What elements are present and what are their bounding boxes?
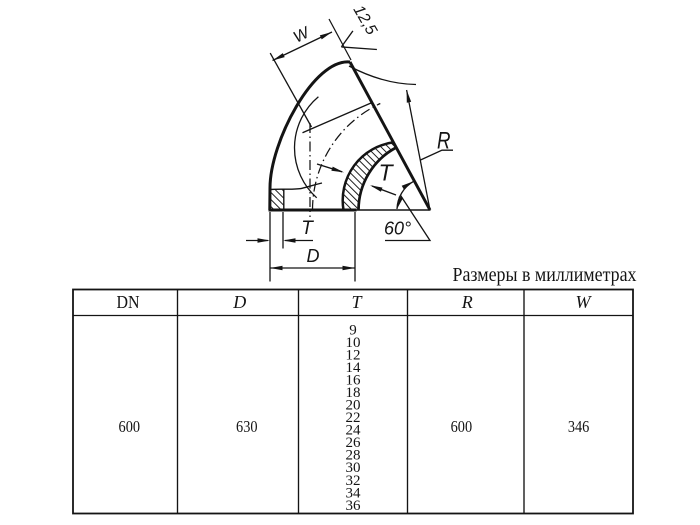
svg-text:600: 600 [119, 417, 141, 436]
svg-text:T: T [301, 218, 314, 239]
svg-text:DN: DN [117, 292, 140, 312]
svg-text:R: R [437, 128, 451, 155]
svg-text:Размеры в миллиметрах: Размеры в миллиметрах [453, 264, 637, 286]
svg-text:36: 36 [346, 498, 362, 514]
svg-text:W: W [576, 292, 593, 312]
svg-text:D: D [307, 246, 320, 266]
svg-text:60°: 60° [384, 219, 411, 239]
svg-text:D: D [232, 292, 246, 312]
svg-text:R: R [461, 292, 473, 312]
svg-text:T: T [378, 160, 394, 186]
svg-text:346: 346 [568, 417, 590, 436]
svg-text:630: 630 [236, 417, 258, 436]
svg-text:600: 600 [451, 417, 473, 436]
